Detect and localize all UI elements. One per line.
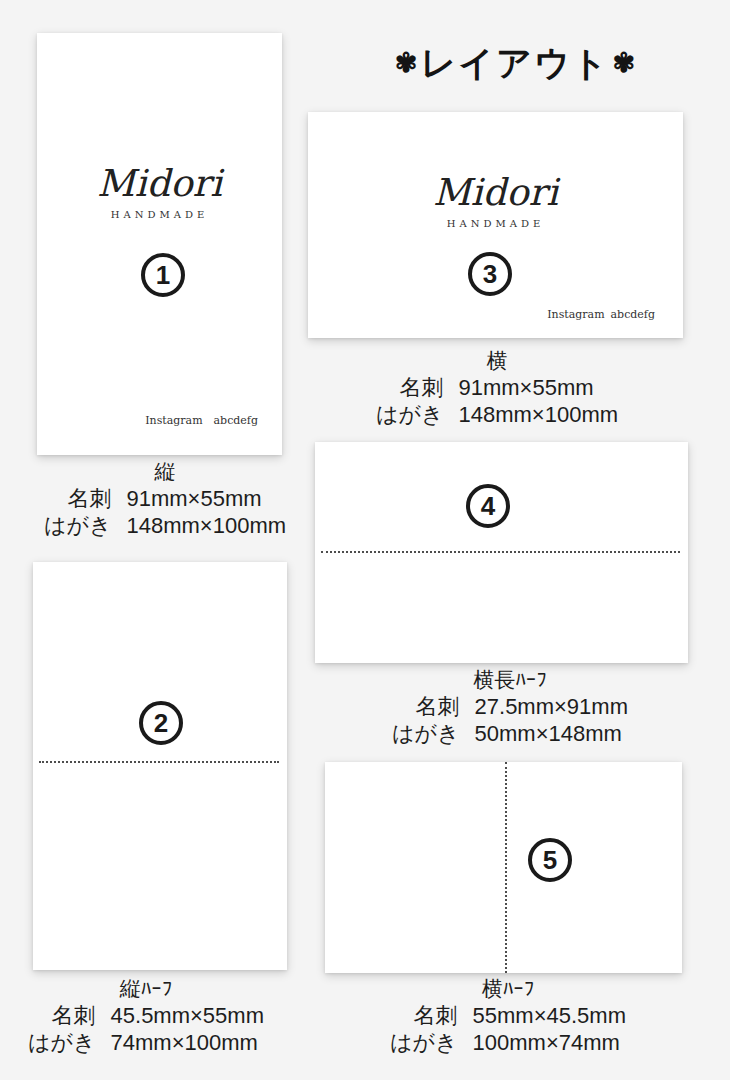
brand-subtitle: HANDMADE	[308, 218, 683, 229]
instagram-account: abcdefg	[611, 308, 655, 321]
size-table: 名刺 91mm×55mm はがき 148mm×100mm	[20, 485, 310, 539]
layout-card-horizontal: Midori HANDMADE 3 Instagramabcdefg	[308, 112, 683, 338]
layout-number-badge: 3	[468, 252, 512, 296]
size-info-vertical: 縦 名刺 91mm×55mm はがき 148mm×100mm	[20, 459, 310, 539]
meishi-label: 名刺	[390, 1002, 458, 1029]
layout-number-badge: 1	[141, 253, 185, 297]
hagaki-size: 50mm×148mm	[475, 720, 628, 747]
brand-name: Midori	[308, 174, 683, 211]
layout-number: 2	[154, 708, 168, 739]
brand-logo: Midori HANDMADE	[37, 165, 282, 220]
size-info-horizontal-half: 横ﾊｰﾌ 名刺 55mm×45.5mm はがき 100mm×74mm	[355, 976, 661, 1056]
hagaki-size: 148mm×100mm	[458, 401, 618, 428]
hagaki-label: はがき	[392, 720, 460, 747]
meishi-size: 91mm×55mm	[126, 485, 286, 512]
layout-label: 横ﾊｰﾌ	[355, 976, 661, 1001]
layout-number-badge: 5	[528, 838, 572, 882]
layout-card-horizontal-long-half: 4	[315, 442, 688, 663]
brand-logo: Midori HANDMADE	[308, 174, 683, 229]
hagaki-label: はがき	[28, 1029, 96, 1056]
flower-icon: ✾	[392, 48, 421, 78]
layout-card-vertical-half: 2	[33, 562, 287, 970]
fold-line-horizontal	[39, 761, 279, 763]
fold-line-horizontal	[321, 551, 680, 553]
meishi-label: 名刺	[392, 693, 460, 720]
size-table: 名刺 45.5mm×55mm はがき 74mm×100mm	[0, 1002, 292, 1056]
meishi-size: 55mm×45.5mm	[473, 1002, 626, 1029]
layout-card-horizontal-half: 5	[325, 762, 682, 973]
size-info-horizontal-long-half: 横長ﾊｰﾌ 名刺 27.5mm×91mm はがき 50mm×148mm	[355, 667, 665, 747]
brand-name: Midori	[37, 165, 282, 202]
meishi-size: 91mm×55mm	[458, 374, 618, 401]
page-title: ✾レイアウト✾	[300, 40, 730, 87]
meishi-size: 45.5mm×55mm	[111, 1002, 264, 1029]
size-table: 名刺 55mm×45.5mm はがき 100mm×74mm	[355, 1002, 661, 1056]
layout-number: 4	[481, 491, 495, 522]
size-table: 名刺 91mm×55mm はがき 148mm×100mm	[340, 374, 654, 428]
layout-number: 1	[156, 260, 170, 291]
instagram-handle: Instagramabcdefg	[145, 414, 258, 427]
instagram-handle: Instagramabcdefg	[547, 308, 655, 321]
layout-label: 横	[340, 348, 654, 373]
brand-subtitle: HANDMADE	[37, 209, 282, 220]
layout-number-badge: 4	[466, 484, 510, 528]
fold-line-vertical	[505, 762, 507, 973]
hagaki-label: はがき	[376, 401, 444, 428]
instagram-label: Instagram	[547, 308, 604, 321]
layout-number: 3	[483, 259, 497, 290]
meishi-label: 名刺	[44, 485, 112, 512]
flower-icon: ✾	[610, 48, 639, 78]
meishi-size: 27.5mm×91mm	[475, 693, 628, 720]
instagram-account: abcdefg	[214, 414, 258, 427]
meishi-label: 名刺	[376, 374, 444, 401]
layout-number: 5	[543, 845, 557, 876]
layout-label: 縦	[20, 459, 310, 484]
size-table: 名刺 27.5mm×91mm はがき 50mm×148mm	[355, 693, 665, 747]
hagaki-size: 100mm×74mm	[473, 1029, 626, 1056]
layout-label: 縦ﾊｰﾌ	[0, 976, 292, 1001]
meishi-label: 名刺	[28, 1002, 96, 1029]
size-info-horizontal: 横 名刺 91mm×55mm はがき 148mm×100mm	[340, 348, 654, 428]
hagaki-size: 74mm×100mm	[111, 1029, 264, 1056]
layout-card-vertical: Midori HANDMADE 1 Instagramabcdefg	[37, 33, 282, 455]
page-title-text: レイアウト	[420, 43, 609, 82]
layout-label: 横長ﾊｰﾌ	[355, 667, 665, 692]
hagaki-label: はがき	[390, 1029, 458, 1056]
layout-number-badge: 2	[139, 701, 183, 745]
instagram-label: Instagram	[145, 414, 202, 427]
size-info-vertical-half: 縦ﾊｰﾌ 名刺 45.5mm×55mm はがき 74mm×100mm	[0, 976, 292, 1056]
hagaki-size: 148mm×100mm	[126, 512, 286, 539]
hagaki-label: はがき	[44, 512, 112, 539]
